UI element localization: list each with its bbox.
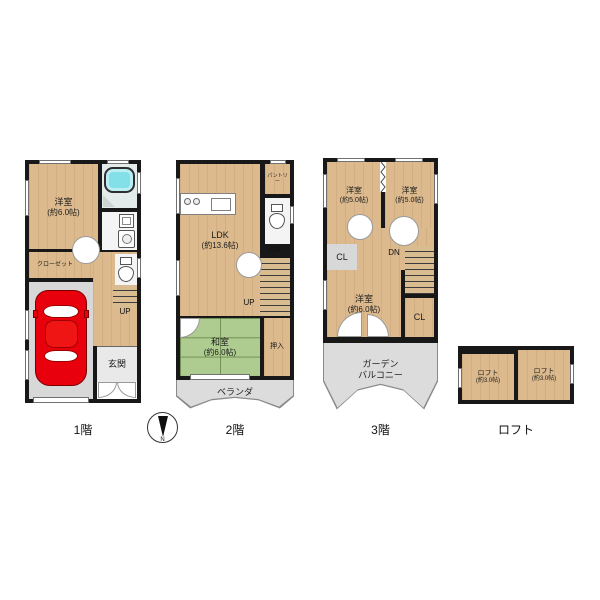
door-arc: [347, 214, 373, 240]
floorplan-sheet: 洋室 (約6.0帖) UP クローゼット 玄関: [0, 0, 600, 600]
stairs-up-label: UP: [113, 307, 137, 317]
window: [176, 260, 180, 296]
window: [25, 310, 29, 340]
window: [323, 280, 327, 310]
stairs-2f: [260, 258, 290, 316]
room-size-label: (約6.0帖): [204, 348, 236, 357]
room-label: 洋室: [402, 185, 418, 196]
window: [270, 160, 286, 164]
room-entrance: 玄関: [97, 346, 137, 382]
window: [190, 374, 250, 380]
room-label: 洋室: [346, 185, 362, 196]
room-label: 洋室: [355, 294, 373, 305]
garage-door: [33, 397, 89, 403]
room-ldk: LDK (約13.6帖): [180, 164, 260, 316]
floor2-label: 2階: [176, 421, 294, 438]
room-label: 洋室: [54, 197, 72, 208]
room-pantry: パントリー: [265, 164, 290, 194]
door-arc: [72, 236, 100, 264]
stairs-up-label: UP: [238, 298, 260, 308]
room-size-label: (約6.0帖): [348, 305, 380, 314]
car-icon: [35, 290, 87, 386]
veranda-label: ベランダ: [176, 387, 294, 397]
washing-machine-icon: [119, 214, 134, 228]
stairs-3f: [405, 246, 434, 294]
toilet-icon: [269, 204, 285, 229]
room-oshiire: 押入: [264, 318, 290, 376]
compass-needle: [158, 416, 168, 437]
floorplan-loft: ロフト (約3.0帖) ロフト (約3.0帖): [458, 346, 574, 404]
floor1-label: 1階: [25, 421, 141, 438]
window: [290, 206, 294, 224]
garden-balcony: ガーデン バルコニー: [323, 343, 438, 413]
window: [176, 178, 180, 214]
stairs-dn-label: DN: [262, 245, 288, 255]
room-loft-right: ロフト (約3.0帖): [518, 350, 570, 400]
oshiire-label: 押入: [270, 343, 284, 351]
room-size-label: (約3.0帖): [532, 376, 556, 383]
window: [137, 258, 141, 278]
floorplan-1f: 洋室 (約6.0帖) UP クローゼット 玄関: [25, 160, 141, 403]
door-arc: [389, 216, 419, 246]
room-size-label: (約13.6帖): [202, 241, 239, 250]
floor3-label: 3階: [323, 421, 438, 438]
room-label: ロフト: [478, 369, 499, 378]
entrance-label: 玄関: [108, 359, 126, 370]
window: [458, 368, 462, 388]
window: [25, 180, 29, 216]
kitchen-counter-icon: [180, 193, 236, 215]
room-closet-3f-right: CL: [405, 298, 434, 337]
floorplan-2f: LDK (約13.6帖) パントリー DN UP 和室 (約6.0帖) 押入: [176, 160, 294, 380]
closet-label: CL: [336, 252, 348, 263]
north-arrow-icon: N: [147, 412, 178, 443]
room-label: ロフト: [534, 367, 555, 376]
pantry-label: パントリー: [265, 173, 290, 185]
garden-balcony-label: バルコニー: [323, 370, 438, 380]
closet-label: CL: [414, 312, 426, 323]
room-size-label: (約5.0帖): [340, 196, 368, 205]
toilet-icon: [118, 257, 134, 282]
window: [337, 158, 365, 162]
compass-n-label: N: [148, 437, 177, 443]
window: [25, 350, 29, 380]
window: [434, 174, 438, 204]
window: [137, 172, 141, 194]
closet-label: クローゼット: [37, 262, 73, 268]
stairs-dn-label: DN: [383, 248, 405, 258]
room-loft-left: ロフト (約3.0帖): [462, 354, 514, 400]
floorplan-3f: 洋室 (約5.0帖) 洋室 (約5.0帖) CL DN 洋室 (約6.0帖) C…: [323, 158, 438, 343]
room-size-label: (約5.0帖): [395, 196, 423, 205]
window: [39, 160, 71, 164]
veranda: ベランダ: [176, 380, 294, 410]
window: [570, 364, 574, 384]
washbasin-icon: [118, 230, 135, 248]
loft-label: ロフト: [458, 421, 574, 438]
shower-corner-icon: [103, 195, 115, 207]
room-size-label: (約6.0帖): [47, 208, 79, 217]
folding-partition-icon: [380, 162, 386, 192]
stairs-1f: [113, 285, 137, 308]
window: [323, 174, 327, 208]
bathtub-icon: [104, 167, 135, 193]
room-label: 和室: [211, 337, 229, 348]
door-arc: [236, 252, 262, 278]
room-closet-3f-left: CL: [327, 244, 357, 270]
hallway-1f: [93, 318, 137, 346]
room-size-label: (約3.0帖): [476, 378, 500, 385]
window: [107, 160, 129, 164]
window: [395, 158, 423, 162]
room-label: LDK: [211, 230, 229, 241]
garden-balcony-label: ガーデン: [323, 359, 438, 369]
